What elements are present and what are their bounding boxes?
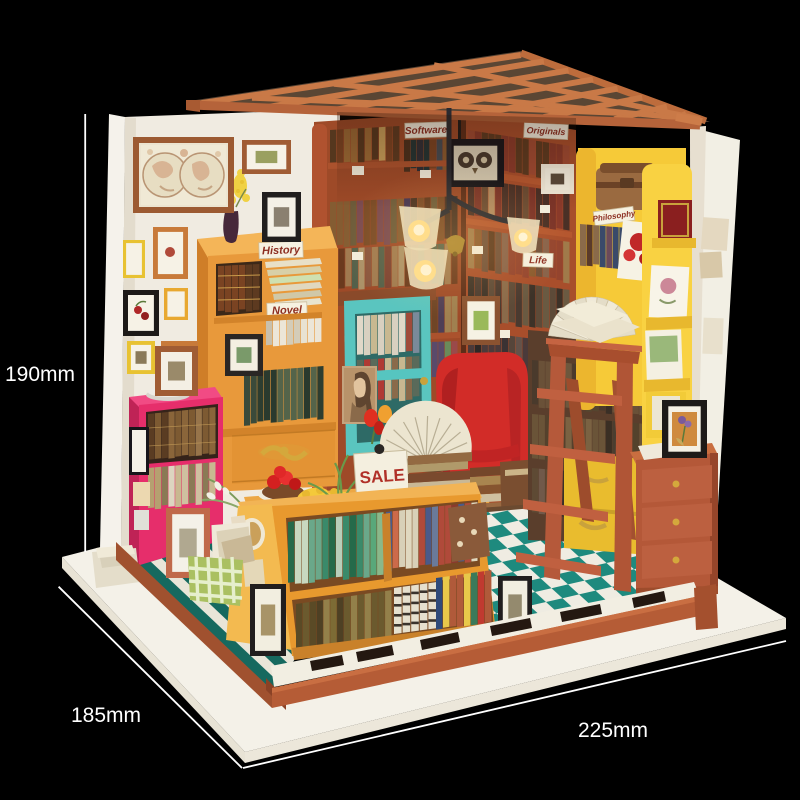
svg-text:History: History — [262, 244, 301, 257]
svg-text:185mm: 185mm — [71, 704, 141, 727]
svg-text:225mm: 225mm — [578, 719, 648, 742]
svg-text:190mm: 190mm — [5, 363, 75, 386]
svg-text:SALE: SALE — [359, 465, 406, 487]
